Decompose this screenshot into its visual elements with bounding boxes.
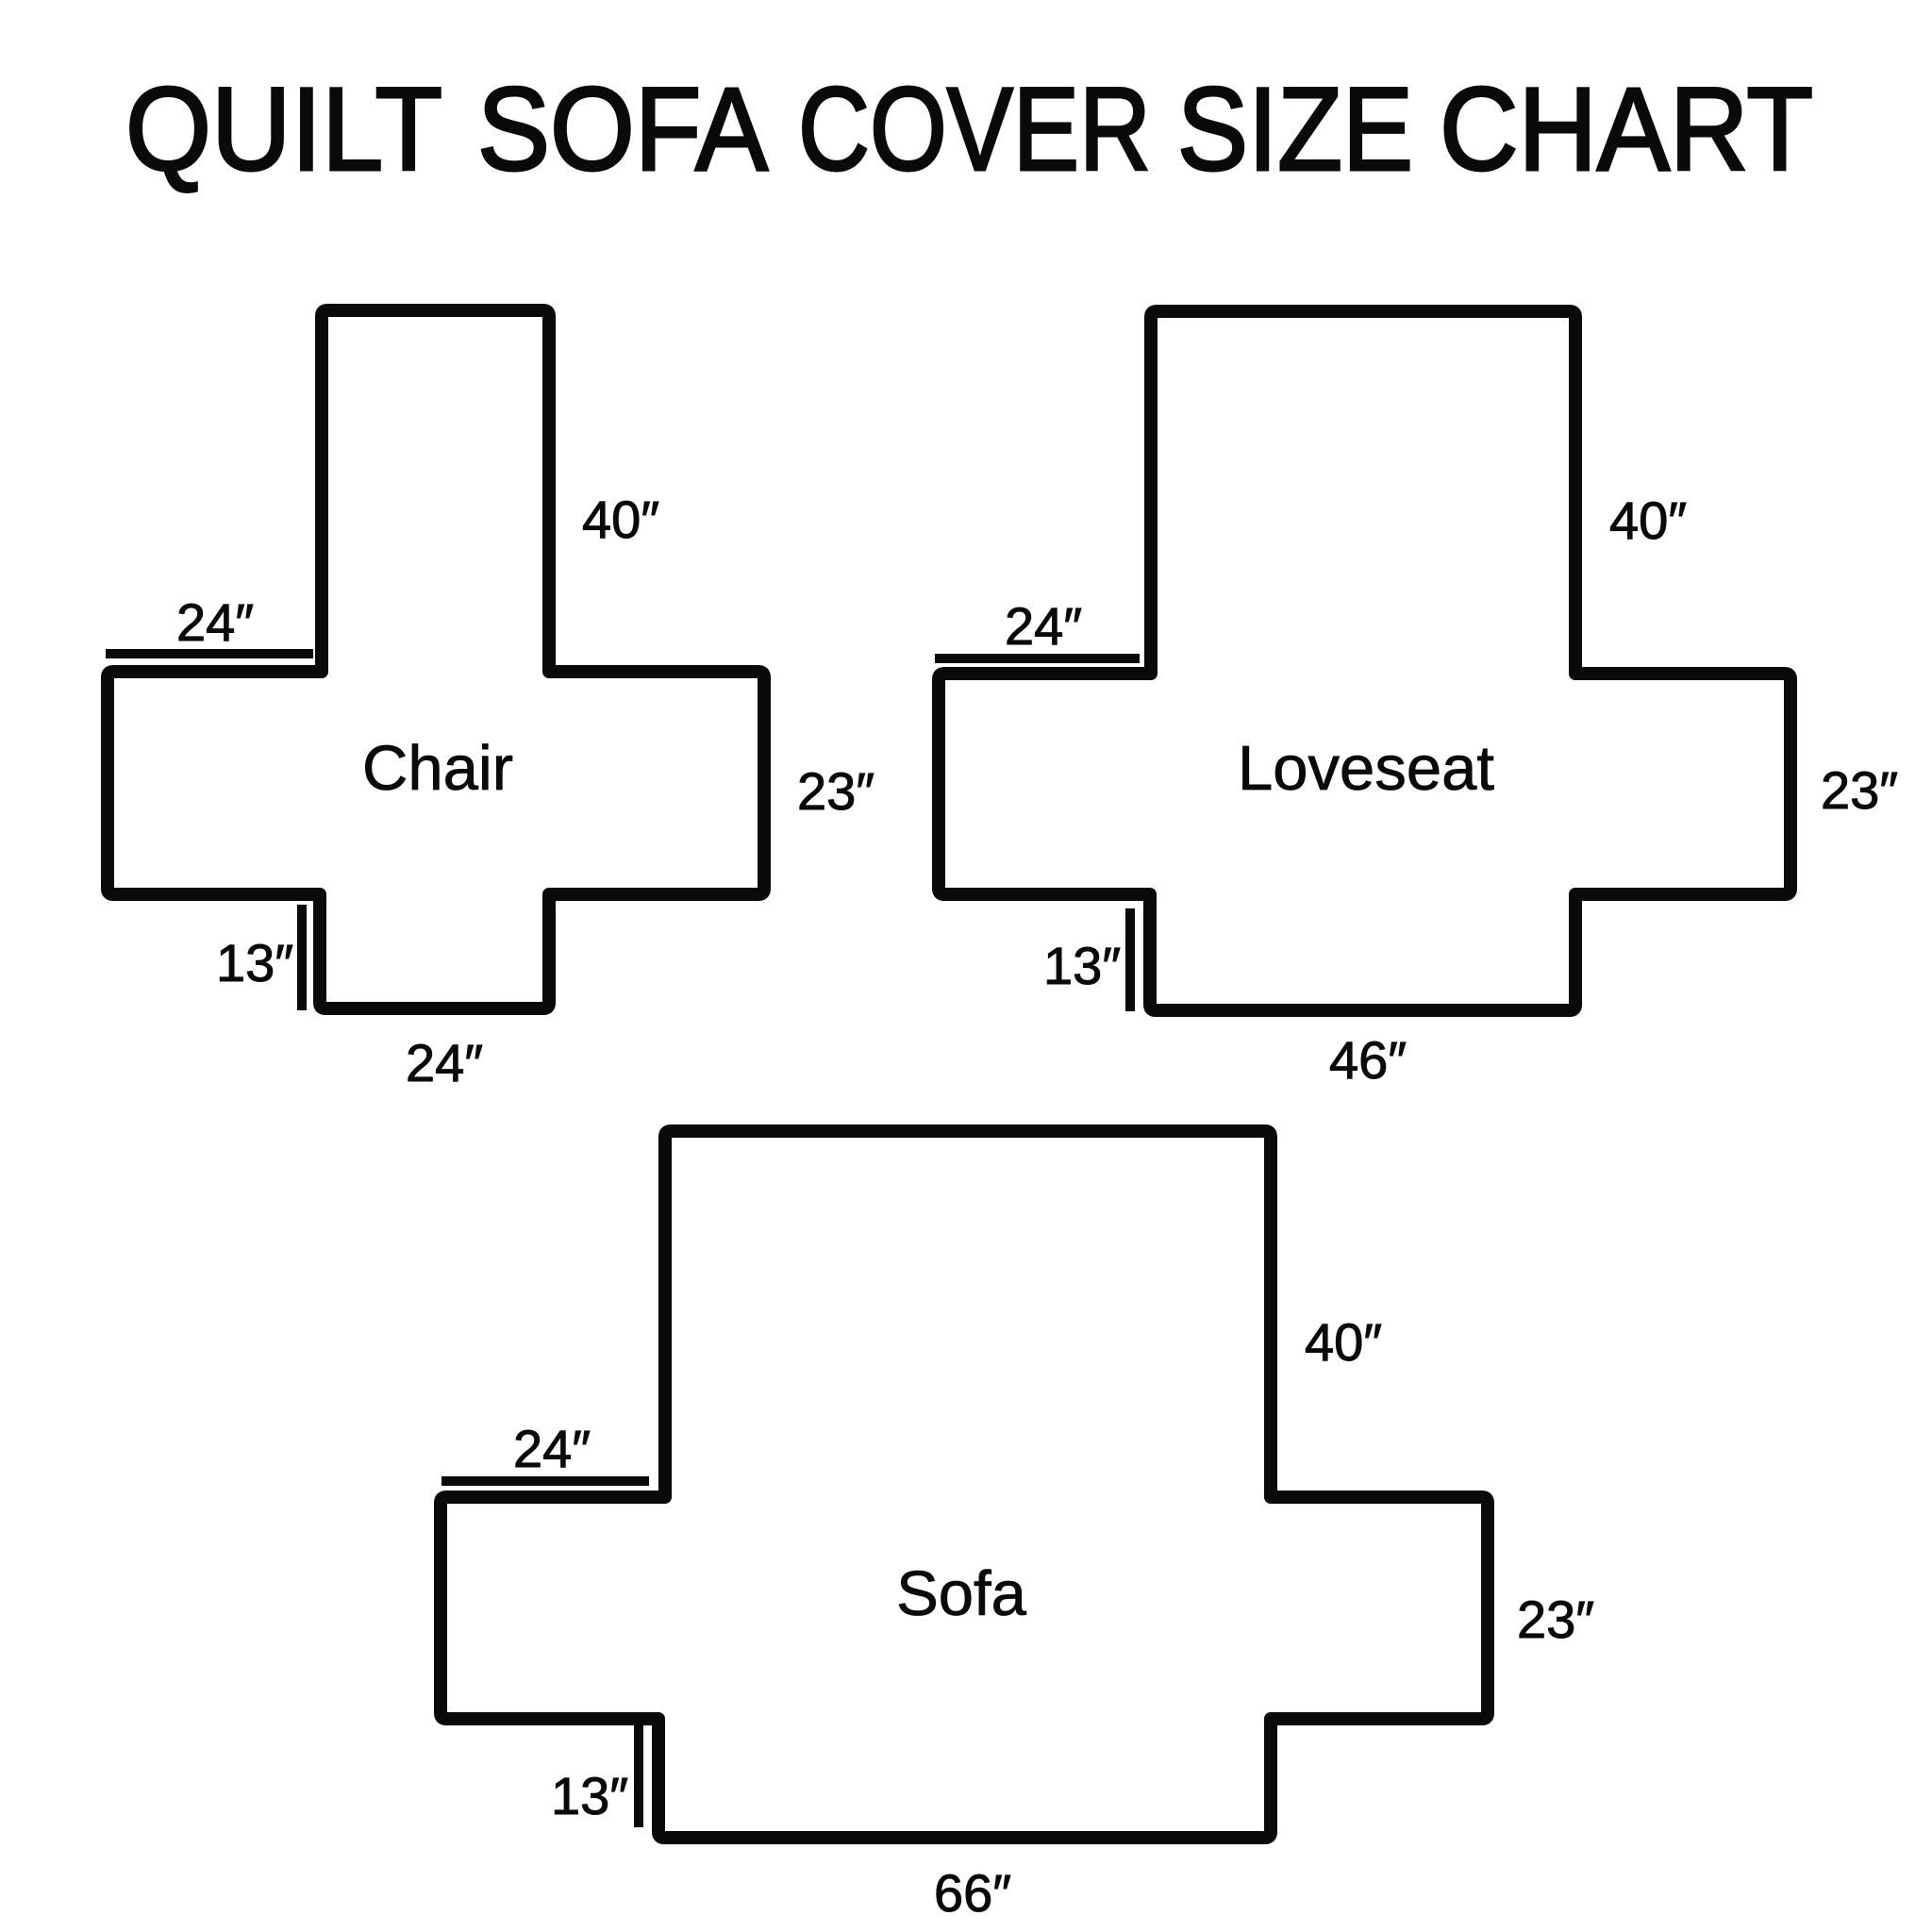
svg-text:23″: 23″: [797, 761, 874, 821]
svg-text:23″: 23″: [1517, 1590, 1594, 1649]
svg-text:13″: 13″: [1043, 936, 1121, 995]
svg-text:24″: 24″: [406, 1033, 483, 1092]
svg-text:24″: 24″: [176, 592, 254, 652]
svg-text:SOFA: SOFA: [477, 64, 769, 195]
svg-text:COVER: COVER: [798, 64, 1151, 195]
svg-text:Loveseat: Loveseat: [1238, 733, 1494, 804]
svg-text:13″: 13″: [551, 1766, 628, 1825]
svg-text:SIZE: SIZE: [1177, 64, 1413, 195]
svg-text:24″: 24″: [1005, 596, 1082, 656]
svg-text:QUILT: QUILT: [125, 64, 442, 195]
svg-text:CHART: CHART: [1440, 64, 1813, 195]
svg-text:40″: 40″: [582, 490, 659, 549]
svg-text:66″: 66″: [934, 1863, 1011, 1923]
svg-text:23″: 23″: [1821, 760, 1898, 820]
svg-text:Chair: Chair: [362, 733, 513, 804]
svg-text:13″: 13″: [216, 933, 293, 992]
svg-text:24″: 24″: [513, 1419, 591, 1478]
svg-text:40″: 40″: [1609, 491, 1687, 550]
svg-text:46″: 46″: [1329, 1030, 1407, 1090]
svg-text:40″: 40″: [1305, 1312, 1382, 1372]
svg-text:Sofa: Sofa: [896, 1558, 1027, 1629]
